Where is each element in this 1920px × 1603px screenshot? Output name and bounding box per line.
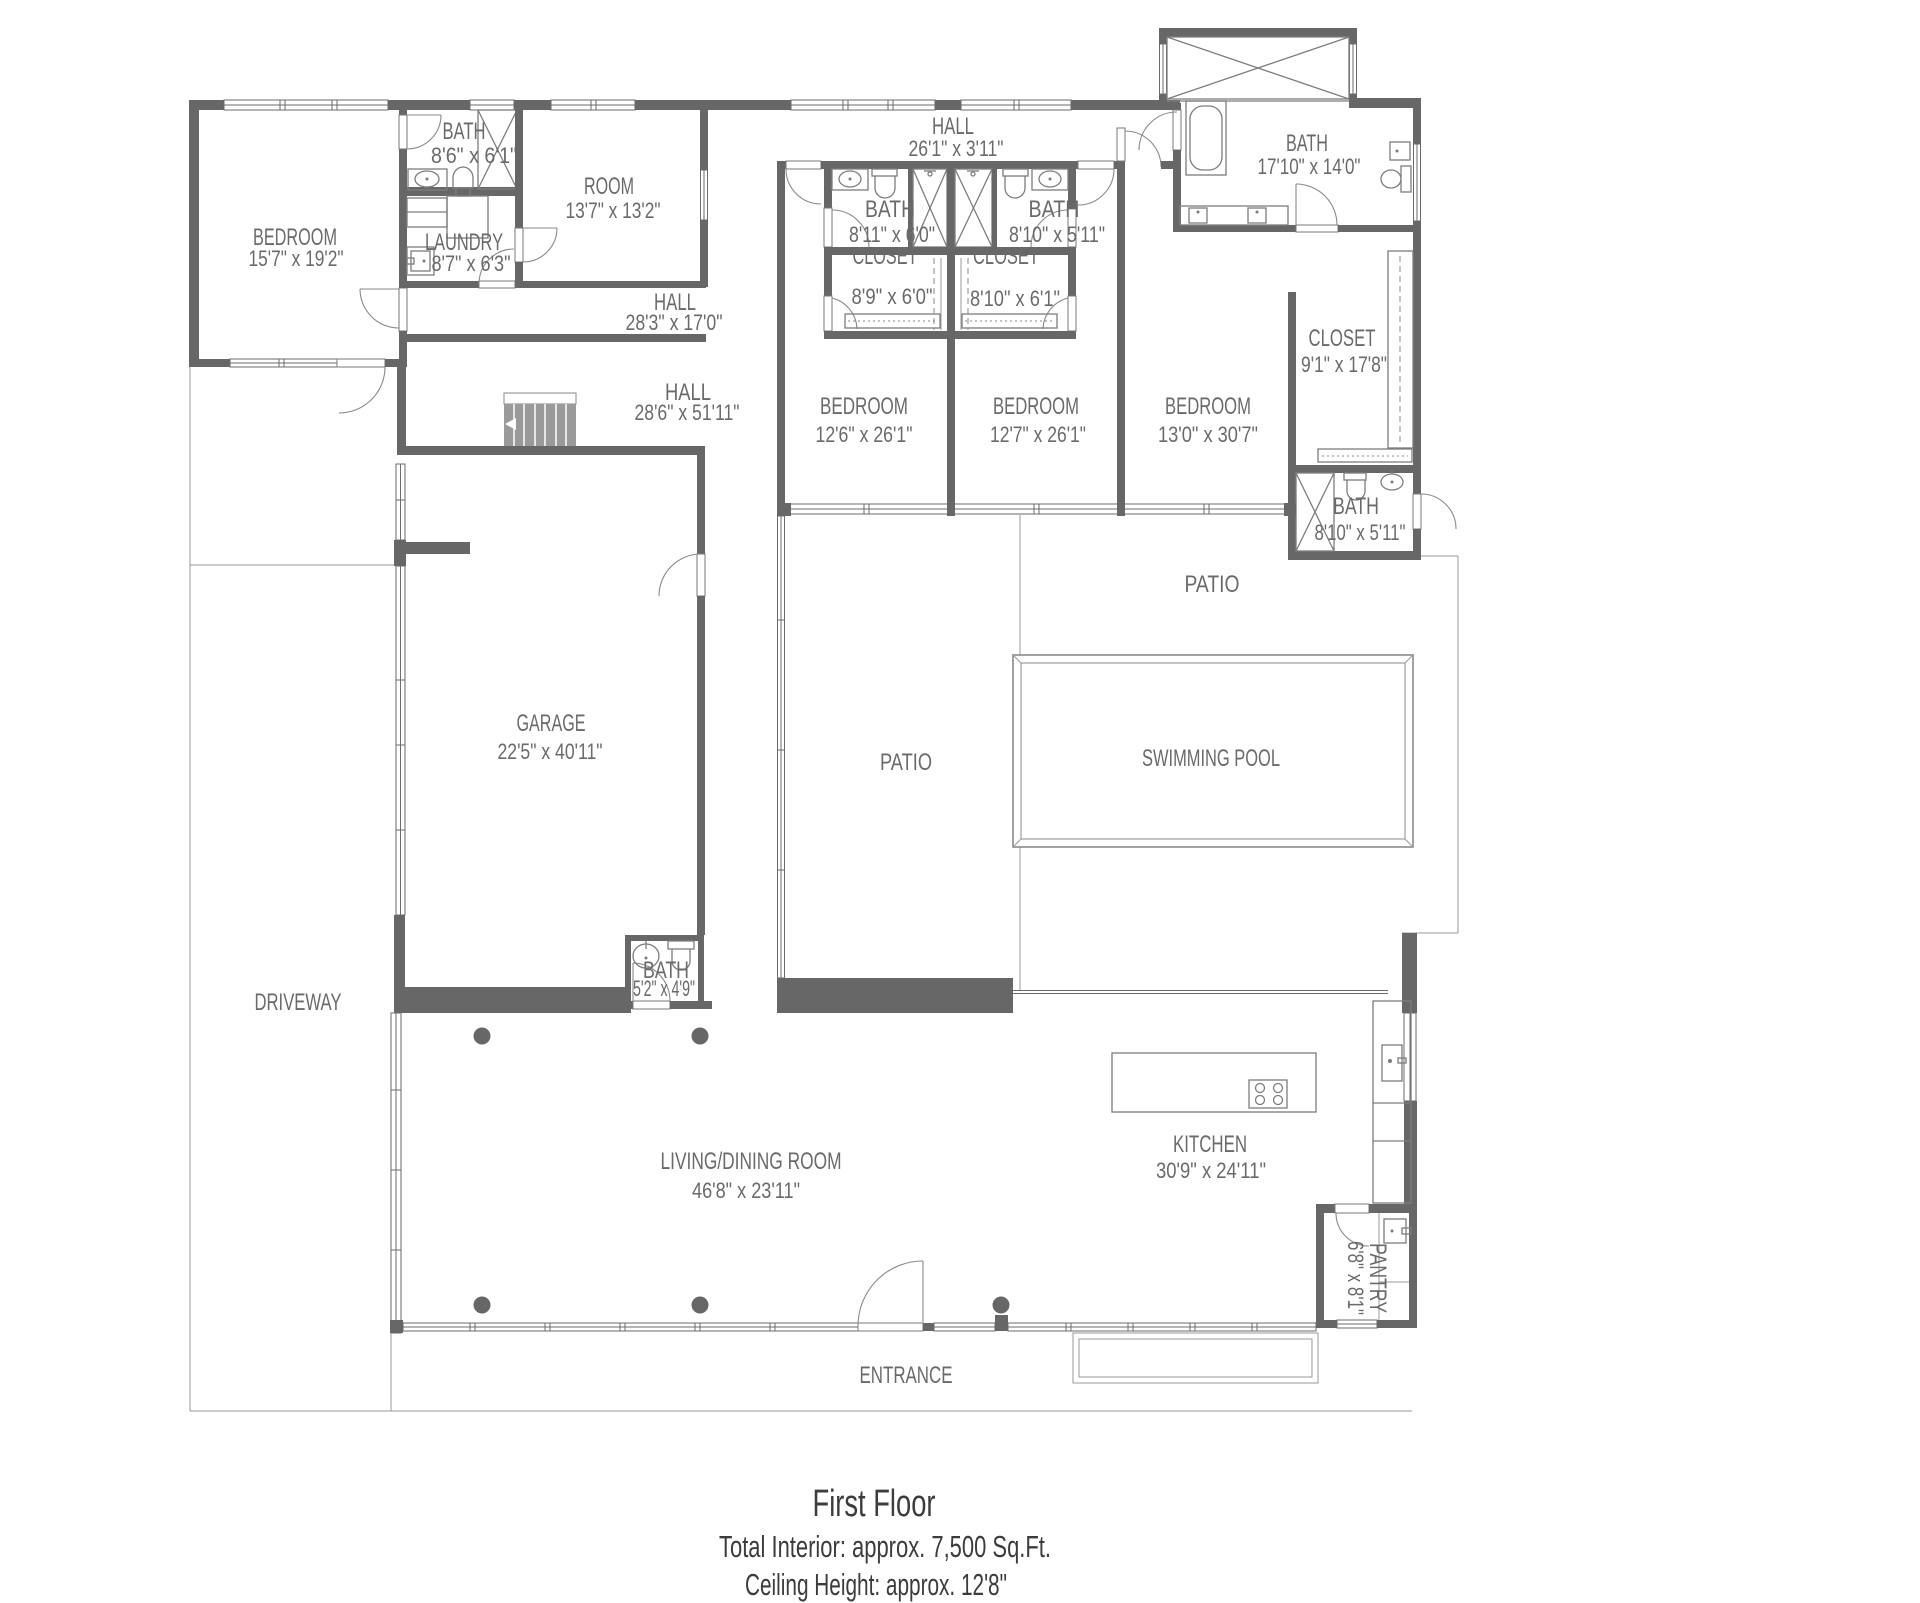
svg-text:12'6" x 26'1": 12'6" x 26'1" [816,422,913,447]
svg-text:PATIO: PATIO [1185,571,1240,598]
svg-text:8'10" x 6'1": 8'10" x 6'1" [970,286,1060,311]
svg-text:8'6" x 6'1": 8'6" x 6'1" [431,143,517,168]
svg-text:ENTRANCE: ENTRANCE [860,1362,953,1389]
svg-text:8'7" x 6'3": 8'7" x 6'3" [432,251,511,276]
svg-text:46'8" x 23'11": 46'8" x 23'11" [692,1178,800,1203]
svg-text:Total Interior: approx. 7,500: Total Interior: approx. 7,500 Sq.Ft. [719,1529,1051,1564]
svg-text:CLOSET: CLOSET [853,243,918,270]
svg-text:SWIMMING POOL: SWIMMING POOL [1142,745,1280,772]
svg-text:ROOM: ROOM [584,173,634,200]
svg-text:BATH: BATH [1333,493,1379,520]
svg-text:BATH: BATH [1286,130,1328,157]
svg-text:8'9" x 6'0": 8'9" x 6'0" [852,284,933,309]
svg-text:First Floor: First Floor [813,1483,936,1525]
svg-text:28'6" x 51'11": 28'6" x 51'11" [635,400,740,425]
svg-text:30'9" x 24'11": 30'9" x 24'11" [1156,1158,1266,1183]
svg-text:22'5" x 40'11": 22'5" x 40'11" [498,739,603,764]
svg-text:BEDROOM: BEDROOM [1165,393,1251,420]
svg-text:12'7" x 26'1": 12'7" x 26'1" [990,422,1086,447]
svg-text:6'8" x 8'1": 6'8" x 8'1" [1343,1241,1368,1315]
svg-text:13'7" x 13'2": 13'7" x 13'2" [566,198,661,223]
svg-text:BEDROOM: BEDROOM [820,393,908,420]
svg-text:BEDROOM: BEDROOM [993,393,1079,420]
svg-text:13'0" x 30'7": 13'0" x 30'7" [1158,422,1258,447]
svg-text:Ceiling Height: approx. 12'8": Ceiling Height: approx. 12'8" [745,1567,1007,1602]
svg-text:17'10" x 14'0": 17'10" x 14'0" [1258,154,1361,179]
svg-text:15'7" x 19'2": 15'7" x 19'2" [249,246,344,271]
svg-text:5'2" x 4'9": 5'2" x 4'9" [633,976,695,1001]
svg-text:28'3" x 17'0": 28'3" x 17'0" [626,310,723,335]
svg-text:KITCHEN: KITCHEN [1173,1131,1247,1158]
svg-text:9'1" x 17'8": 9'1" x 17'8" [1301,352,1387,377]
svg-text:BATH: BATH [1029,196,1080,223]
svg-text:BATH: BATH [443,118,486,145]
svg-text:GARAGE: GARAGE [517,710,586,737]
svg-text:LIVING/DINING ROOM: LIVING/DINING ROOM [661,1148,842,1175]
svg-text:PATIO: PATIO [880,749,932,776]
svg-text:8'10" x 5'11": 8'10" x 5'11" [1315,520,1406,545]
svg-text:CLOSET: CLOSET [1309,325,1376,352]
svg-text:CLOSET: CLOSET [973,243,1039,270]
svg-text:26'1" x 3'11": 26'1" x 3'11" [909,136,1004,161]
svg-text:BATH: BATH [865,196,915,223]
svg-text:DRIVEWAY: DRIVEWAY [255,989,342,1016]
